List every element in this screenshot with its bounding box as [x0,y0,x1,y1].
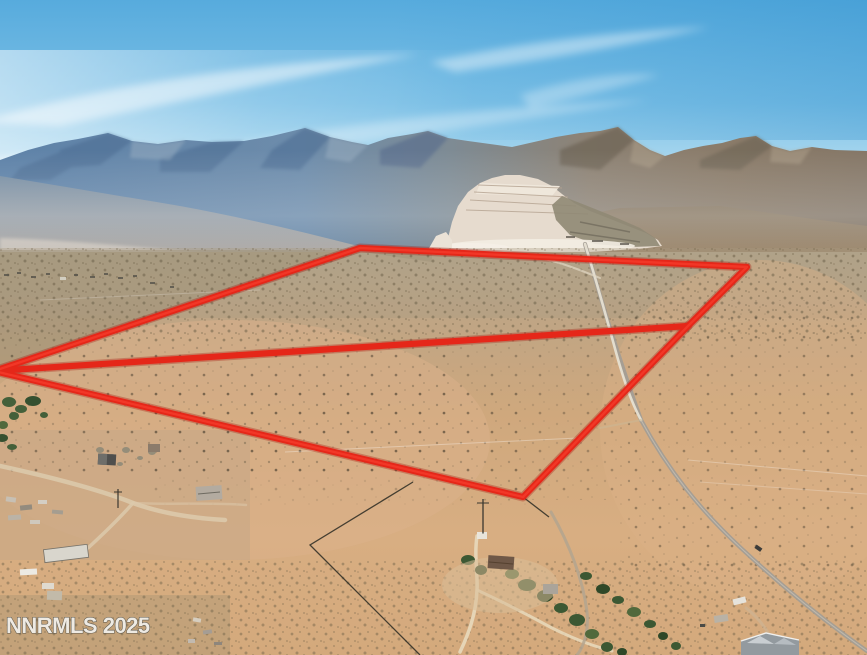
photo-canvas: NNRMLS 2025 [0,0,867,655]
desert-floor [0,248,867,655]
mls-watermark: NNRMLS 2025 [6,613,150,638]
aerial-listing-photo: NNRMLS 2025 [0,0,867,655]
